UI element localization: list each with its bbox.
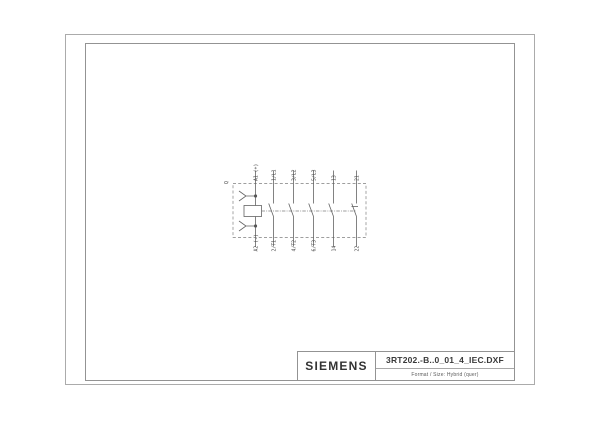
terminal-label-a1: A1 (+) [254,164,260,181]
suppressor-tap-bottom-icon [239,221,256,231]
terminal-label-bottom: 4/T2 [292,240,298,252]
coil-symbol [244,206,262,217]
terminal-label-top: 3/L2 [292,169,298,181]
drawing-name-row: 3RT202.-B..0_01_4_IEC.DXF [376,352,514,369]
drawing-sheet: Q A1 (+) A2 (-) 1/L12/T13/L24/T25/L36/T3… [0,0,600,424]
junction-dot-bottom [254,224,257,227]
junction-dot-top [254,194,257,197]
format-size-note: Format / Size: Hybrid (quer) [411,372,478,378]
brand-cell: SIEMENS [298,352,376,380]
contact-moving-line [329,204,334,217]
drawing-filename: 3RT202.-B..0_01_4_IEC.DXF [386,355,504,365]
contact-poles: 1/L12/T13/L24/T25/L36/T313142122 [269,169,361,251]
terminal-label-bottom: 6/T3 [312,240,318,252]
terminal-label-top: 1/L1 [272,169,278,181]
terminal-label-bottom: 22 [355,246,361,252]
terminal-label-bottom: 2/T1 [272,240,278,252]
terminal-label-top: 21 [355,175,361,181]
brand-logo: SIEMENS [305,359,367,373]
contact-moving-line [289,204,294,217]
format-row: Format / Size: Hybrid (quer) [376,369,514,380]
contact-moving-line [352,204,357,217]
drawing-name-cell: 3RT202.-B..0_01_4_IEC.DXF Format / Size:… [376,352,514,380]
contact-moving-line [269,204,274,217]
suppressor-tap-top-icon [239,191,256,201]
title-block: SIEMENS 3RT202.-B..0_01_4_IEC.DXF Format… [297,351,515,381]
terminal-label-bottom: 14 [332,246,338,252]
terminal-label-a2: A2 (-) [254,234,260,251]
terminal-label-top: 5/L3 [312,169,318,181]
device-designation-label: Q [224,181,230,184]
contact-moving-line [309,204,314,217]
terminal-label-top: 13 [332,175,338,181]
